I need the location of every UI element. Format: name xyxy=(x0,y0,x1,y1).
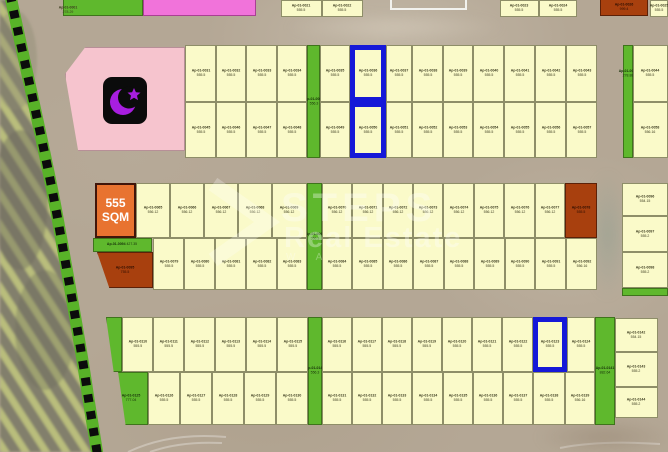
plot-cell: Ap-01-0143555.2 xyxy=(615,352,658,387)
plot-cell: Ap-01-0065556.12 xyxy=(136,183,170,238)
plot-cell: Ap-01-0086555.5 xyxy=(383,238,413,290)
plot-cell: Ap-01-0046555.5 xyxy=(216,102,246,158)
plot-cell: Ap-01-0097555.2 xyxy=(622,216,668,252)
plot-cell: Ap-01-0092556.16 xyxy=(566,238,597,290)
plot-cell: Ap-01-0122555.5 xyxy=(502,317,533,372)
plot-cell: Ap-01-0069556.12 xyxy=(272,183,307,238)
plot-cell: Ap-01-0134555.5 xyxy=(412,372,443,425)
plot-cell: Ap-01-0041555.5 xyxy=(504,45,535,102)
plot-cell: Ap-01-0142554.15 xyxy=(615,318,658,352)
plot-cell: Ap-01-0127555.5 xyxy=(180,372,212,425)
plot-cell: Ap-01-0074556.12 xyxy=(443,183,474,238)
plot-cell: Ap-01-0044555.5 xyxy=(633,45,668,102)
plot-cell: Ap-01-0032555.5 xyxy=(216,45,246,102)
plot-cell: Ap-01-0072556.12 xyxy=(383,183,413,238)
plot-cell: Ap-01-0128555.5 xyxy=(212,372,244,425)
plot-cell: Ap-01-0080555.5 xyxy=(184,238,215,290)
plot-cell: Ap-01-0058556.16 xyxy=(633,102,668,158)
plot-cell: Ap-01-0118555.5 xyxy=(382,317,412,372)
plot-cell: Ap-01-0088555.5 xyxy=(444,238,474,290)
plot-cell: Ap-01-0121555.5 xyxy=(472,317,502,372)
plot-cell: Ap-01-0130555.5 xyxy=(276,372,308,425)
plot-cell: Ap-01-0079555.5 xyxy=(153,238,184,290)
plot-cell: Ap-01-0083555.5 xyxy=(277,238,307,290)
plot-cell: Ap-01-0096554.15 xyxy=(622,183,668,216)
highlighted-plot: Ap-01-0050555.5 xyxy=(350,102,386,158)
plot-cell: Ap-01-0055555.5 xyxy=(504,102,535,158)
plot-cell: Ap-01-0087555.5 xyxy=(413,238,444,290)
plot-cell: Ap-01-0131555.5 xyxy=(322,372,352,425)
plot-cell: Ap-01-0085555.5 xyxy=(352,238,383,290)
plot-cell: Ap-01-0031555.5 xyxy=(185,45,216,102)
plot-cell: Ap-01-0067556.12 xyxy=(204,183,238,238)
plot-cell: Ap-01-0057555.5 xyxy=(566,102,597,158)
plot-cell: Ap-01-0112555.5 xyxy=(184,317,215,372)
plot-cell: Ap-01-0116555.5 xyxy=(322,317,352,372)
plot-cell: Ap-01-0091555.5 xyxy=(535,238,566,290)
plot-cell: Ap-01-0136555.5 xyxy=(473,372,503,425)
plot-cell: Ap-01-0114555.5 xyxy=(246,317,277,372)
plot-cell: Ap-01-0022555.5 xyxy=(322,0,363,17)
plot-cell: Ap-01-0139556.16 xyxy=(565,372,595,425)
plot-cell: Ap-01-0119555.5 xyxy=(412,317,442,372)
plot-cell: Ap-01-0084555.5 xyxy=(322,238,352,290)
plot-cell: Ap-01-0076556.12 xyxy=(504,183,535,238)
plot-cell: Ap-01-0049555.5 xyxy=(320,102,350,158)
plot-cell: Ap-01-0090555.5 xyxy=(505,238,535,290)
plot-cell: Ap-01-0115555.5 xyxy=(277,317,308,372)
plot-cell: Ap-01-0138555.5 xyxy=(533,372,565,425)
plot-cell: Ap-01-0024555.5 xyxy=(539,0,577,17)
plot-cell: Ap-01-0038555.5 xyxy=(412,45,443,102)
plot-cell: Ap-01-0110555.5 xyxy=(122,317,153,372)
plot-cell: Ap-01-0033555.5 xyxy=(246,45,277,102)
plot-cell: Ap-01-0098555.2 xyxy=(622,252,668,288)
plot-cell: Ap-01-0117555.5 xyxy=(352,317,382,372)
plot-cell: Ap-01-0040555.5 xyxy=(473,45,504,102)
plot-cell: Ap-01-0129555.5 xyxy=(244,372,276,425)
plot-cell: Ap-01-0043555.5 xyxy=(566,45,597,102)
plot-cell: Ap-01-0082555.5 xyxy=(246,238,277,290)
plot-cell: Ap-01-0048555.5 xyxy=(277,102,307,158)
plot-cell: Ap-01-0132555.5 xyxy=(352,372,382,425)
plot-cell: Ap-01-0066556.12 xyxy=(170,183,204,238)
plot-cell: Ap-01-0035555.5 xyxy=(320,45,350,102)
plot-cell: Ap-01-0045555.5 xyxy=(185,102,216,158)
plot-cell: Ap-01-0023555.5 xyxy=(500,0,539,17)
plot-map: Ap-01-0001278.29 Ap-01-0026999.4 555 SQM… xyxy=(0,0,668,452)
plot-cell: Ap-01-0047555.5 xyxy=(246,102,277,158)
plot-cells-layer: Ap-01-0031555.5Ap-01-0032555.5Ap-01-0033… xyxy=(0,0,668,452)
plot-cell: Ap-01-0042555.5 xyxy=(535,45,566,102)
plot-cell: Ap-01-0120555.5 xyxy=(442,317,472,372)
plot-cell: Ap-01-0053555.5 xyxy=(443,102,473,158)
plot-cell: Ap-01-0137555.5 xyxy=(503,372,533,425)
highlighted-plot: Ap-01-0123555.5 xyxy=(533,317,567,372)
plot-cell: Ap-01-0070556.12 xyxy=(322,183,352,238)
plot-cell: Ap-01-0025555.5 xyxy=(650,0,668,17)
plot-cell: Ap-01-0037555.5 xyxy=(386,45,412,102)
plot-cell: Ap-01-0089555.5 xyxy=(474,238,505,290)
plot-cell: Ap-01-0124555.5 xyxy=(567,317,595,372)
plot-cell: Ap-01-0111555.5 xyxy=(153,317,184,372)
plot-cell: Ap-01-0052555.5 xyxy=(412,102,443,158)
plot-cell: Ap-01-0135555.5 xyxy=(443,372,473,425)
plot-cell: Ap-01-0126555.5 xyxy=(148,372,180,425)
plot-cell: Ap-01-0056555.5 xyxy=(535,102,566,158)
plot-cell: Ap-01-0077556.12 xyxy=(535,183,565,238)
plot-cell: Ap-01-0068556.12 xyxy=(238,183,272,238)
plot-cell: Ap-01-0034555.5 xyxy=(277,45,307,102)
plot-cell: Ap-01-0073556.12 xyxy=(413,183,443,238)
plot-cell: Ap-01-0075556.12 xyxy=(474,183,504,238)
plot-cell: Ap-01-0039555.5 xyxy=(443,45,473,102)
plot-cell: Ap-01-0051555.5 xyxy=(386,102,412,158)
plot-cell: Ap-01-0021555.5 xyxy=(281,0,322,17)
plot-cell: Ap-01-0144555.2 xyxy=(615,387,658,418)
plot-cell: Ap-01-0071556.12 xyxy=(352,183,383,238)
plot-cell: Ap-01-0113555.5 xyxy=(215,317,246,372)
plot-cell: Ap-01-0133555.5 xyxy=(382,372,412,425)
highlighted-plot: Ap-01-0036555.5 xyxy=(350,45,386,102)
plot-cell: Ap-01-0081555.5 xyxy=(215,238,246,290)
plot-cell: Ap-01-0054555.5 xyxy=(473,102,504,158)
